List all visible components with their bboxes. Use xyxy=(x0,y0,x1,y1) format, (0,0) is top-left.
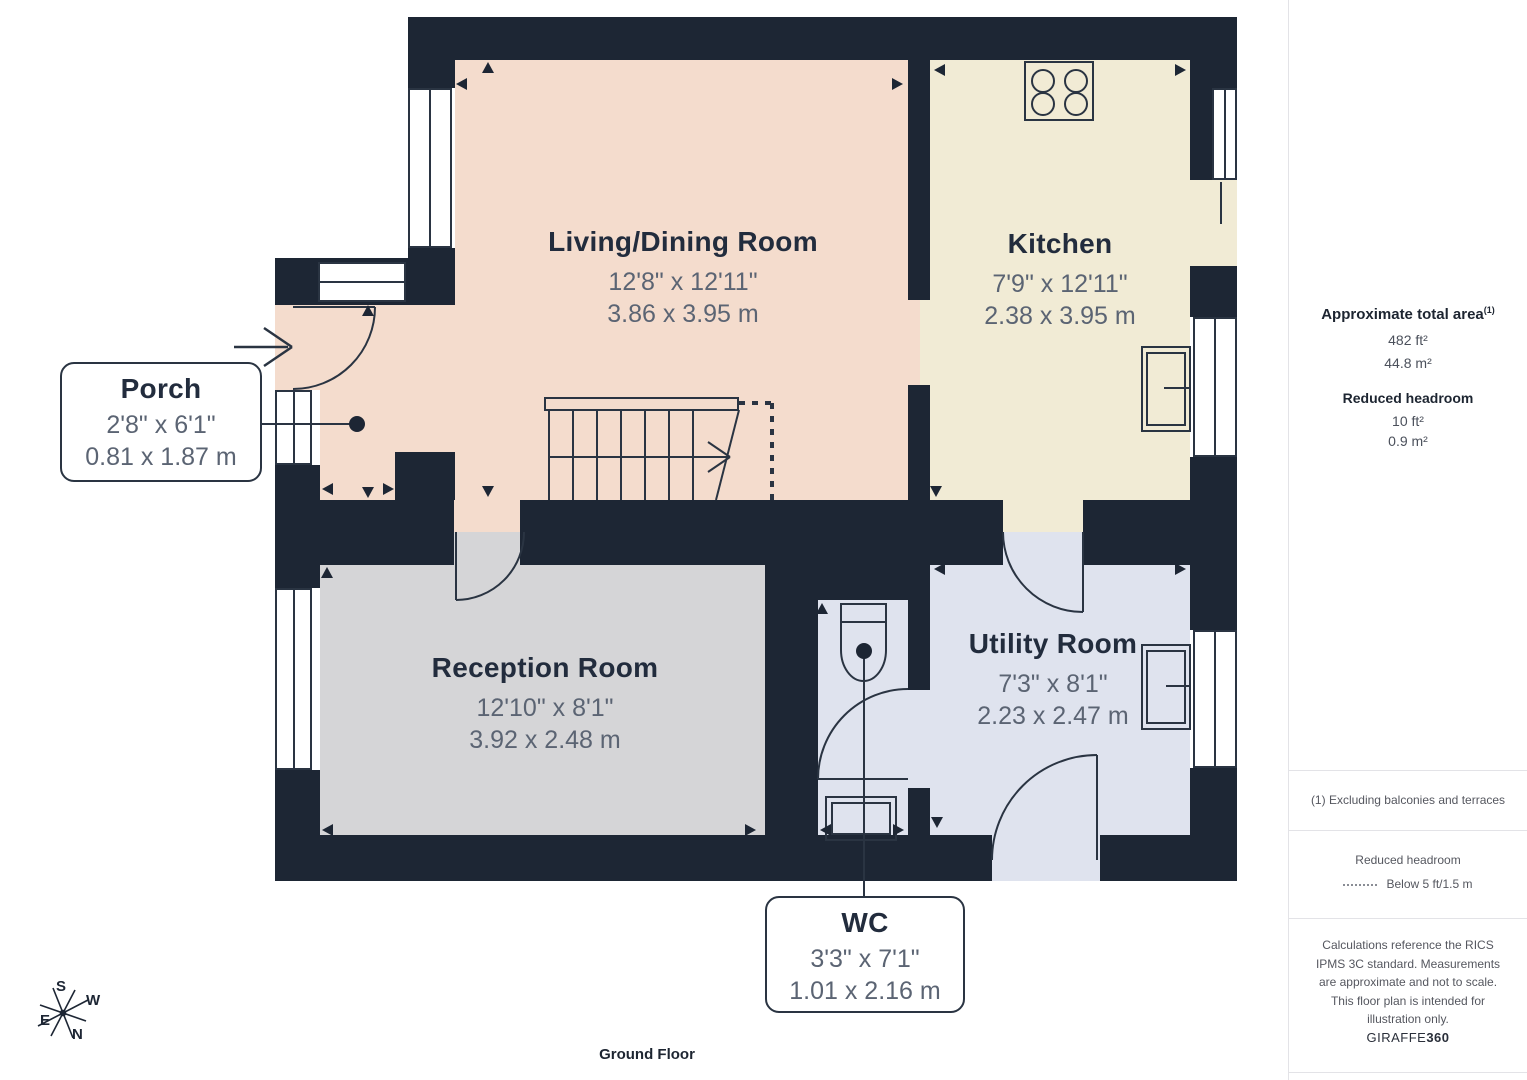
wc-door-opening xyxy=(908,690,930,788)
wall xyxy=(908,60,930,300)
wc-dims-imperial: 3'3" x 7'1" xyxy=(777,943,953,975)
wall xyxy=(408,17,1237,60)
reduced-headroom-ft: 10 ft² xyxy=(1289,413,1527,429)
floorplan-page: Living/Dining Room 12'8" x 12'11" 3.86 x… xyxy=(0,0,1527,1080)
utility-exterior-door-swing xyxy=(992,835,1100,881)
compass-w-label: W xyxy=(86,992,100,1009)
reception-window xyxy=(275,588,312,770)
reception-room-dims-imperial: 12'10" x 8'1" xyxy=(432,692,659,724)
total-area-title: Approximate total area(1) xyxy=(1289,305,1527,324)
porch-dims-imperial: 2'8" x 6'1" xyxy=(72,409,250,441)
living-kitchen-opening xyxy=(908,300,920,385)
area-footnote: (1) Excluding balconies and terraces xyxy=(1289,793,1527,807)
wall xyxy=(765,565,930,600)
utility-room-dims-imperial: 7'3" x 8'1" xyxy=(969,668,1137,700)
wall xyxy=(275,500,454,565)
reduced-headroom-dash xyxy=(1343,884,1377,886)
total-area-ft: 482 ft² xyxy=(1289,332,1527,348)
wc-name: WC xyxy=(777,907,953,939)
legend-value: Below 5 ft/1.5 m xyxy=(1386,877,1472,891)
wall xyxy=(1190,88,1212,180)
wc-dims-metric: 1.01 x 2.16 m xyxy=(777,975,953,1007)
kitchen-opening-side xyxy=(920,300,930,385)
utility-door-opening-top xyxy=(1003,500,1083,532)
reception-room-label: Reception Room 12'10" x 8'1" 3.92 x 2.48… xyxy=(432,652,659,756)
living-room-dims-imperial: 12'8" x 12'11" xyxy=(548,266,818,298)
kitchen-label: Kitchen 7'9" x 12'11" 2.38 x 3.95 m xyxy=(984,228,1135,332)
divider xyxy=(1289,830,1527,831)
reception-door-opening-top xyxy=(454,500,520,532)
wall xyxy=(908,600,930,690)
divider xyxy=(1289,1072,1527,1073)
porch-dims-metric: 0.81 x 1.87 m xyxy=(72,441,250,473)
sidebar: Approximate total area(1) 482 ft² 44.8 m… xyxy=(1288,0,1527,1080)
giraffe360-logo: GIRAFFE360 xyxy=(1289,1030,1527,1045)
kitchen-dims-imperial: 7'9" x 12'11" xyxy=(984,268,1135,300)
reception-door-opening-bottom xyxy=(454,532,520,565)
wc-floor xyxy=(818,600,908,835)
utility-room-name: Utility Room xyxy=(969,628,1137,660)
wall xyxy=(1083,500,1190,565)
utility-window xyxy=(1193,630,1237,768)
utility-room-dims-metric: 2.23 x 2.47 m xyxy=(969,700,1137,732)
kitchen-window-upper xyxy=(1212,88,1237,180)
wall xyxy=(765,600,818,835)
front-door-opening xyxy=(275,305,320,390)
reduced-headroom-title: Reduced headroom xyxy=(1289,390,1527,408)
wall xyxy=(520,500,930,565)
compass-n-label: N xyxy=(72,1026,83,1043)
reception-room-name: Reception Room xyxy=(432,652,659,684)
reception-room-dims-metric: 3.92 x 2.48 m xyxy=(432,724,659,756)
wall xyxy=(408,60,455,88)
living-window xyxy=(408,88,452,248)
porch-callout: Porch 2'8" x 6'1" 0.81 x 1.87 m xyxy=(60,362,262,482)
porch-top-window xyxy=(318,262,406,302)
wall xyxy=(930,500,1003,565)
compass-e-label: E xyxy=(40,1012,50,1029)
legend-title: Reduced headroom xyxy=(1289,853,1527,867)
utility-door-opening-bottom xyxy=(1003,532,1083,565)
living-room-label: Living/Dining Room 12'8" x 12'11" 3.86 x… xyxy=(548,226,818,330)
porch-name: Porch xyxy=(72,373,250,405)
wall xyxy=(908,788,930,835)
floor-title: Ground Floor xyxy=(599,1046,695,1063)
compass-s-label: S xyxy=(56,978,66,995)
kitchen-name: Kitchen xyxy=(984,228,1135,260)
total-area-m: 44.8 m² xyxy=(1289,355,1527,371)
divider xyxy=(1289,770,1527,771)
divider xyxy=(1289,918,1527,919)
kitchen-floor-notch xyxy=(1190,180,1237,266)
wall xyxy=(1190,457,1237,630)
wc-callout: WC 3'3" x 7'1" 1.01 x 2.16 m xyxy=(765,896,965,1013)
kitchen-window-lower xyxy=(1193,317,1237,457)
living-room-dims-metric: 3.86 x 3.95 m xyxy=(548,298,818,330)
utility-room-label: Utility Room 7'3" x 8'1" 2.23 x 2.47 m xyxy=(969,628,1137,732)
wall xyxy=(1190,768,1237,835)
porch-side-window xyxy=(275,390,312,465)
kitchen-dims-metric: 2.38 x 3.95 m xyxy=(984,300,1135,332)
wall xyxy=(1190,266,1237,317)
wall xyxy=(908,385,930,500)
wall xyxy=(395,452,455,500)
reduced-headroom-m: 0.9 m² xyxy=(1289,433,1527,449)
disclaimer-text: Calculations reference the RICS IPMS 3C … xyxy=(1289,936,1527,1029)
footnote-marker: (1) xyxy=(1484,305,1495,315)
legend-row: Below 5 ft/1.5 m xyxy=(1289,877,1527,891)
wall xyxy=(1190,60,1237,88)
living-room-name: Living/Dining Room xyxy=(548,226,818,258)
